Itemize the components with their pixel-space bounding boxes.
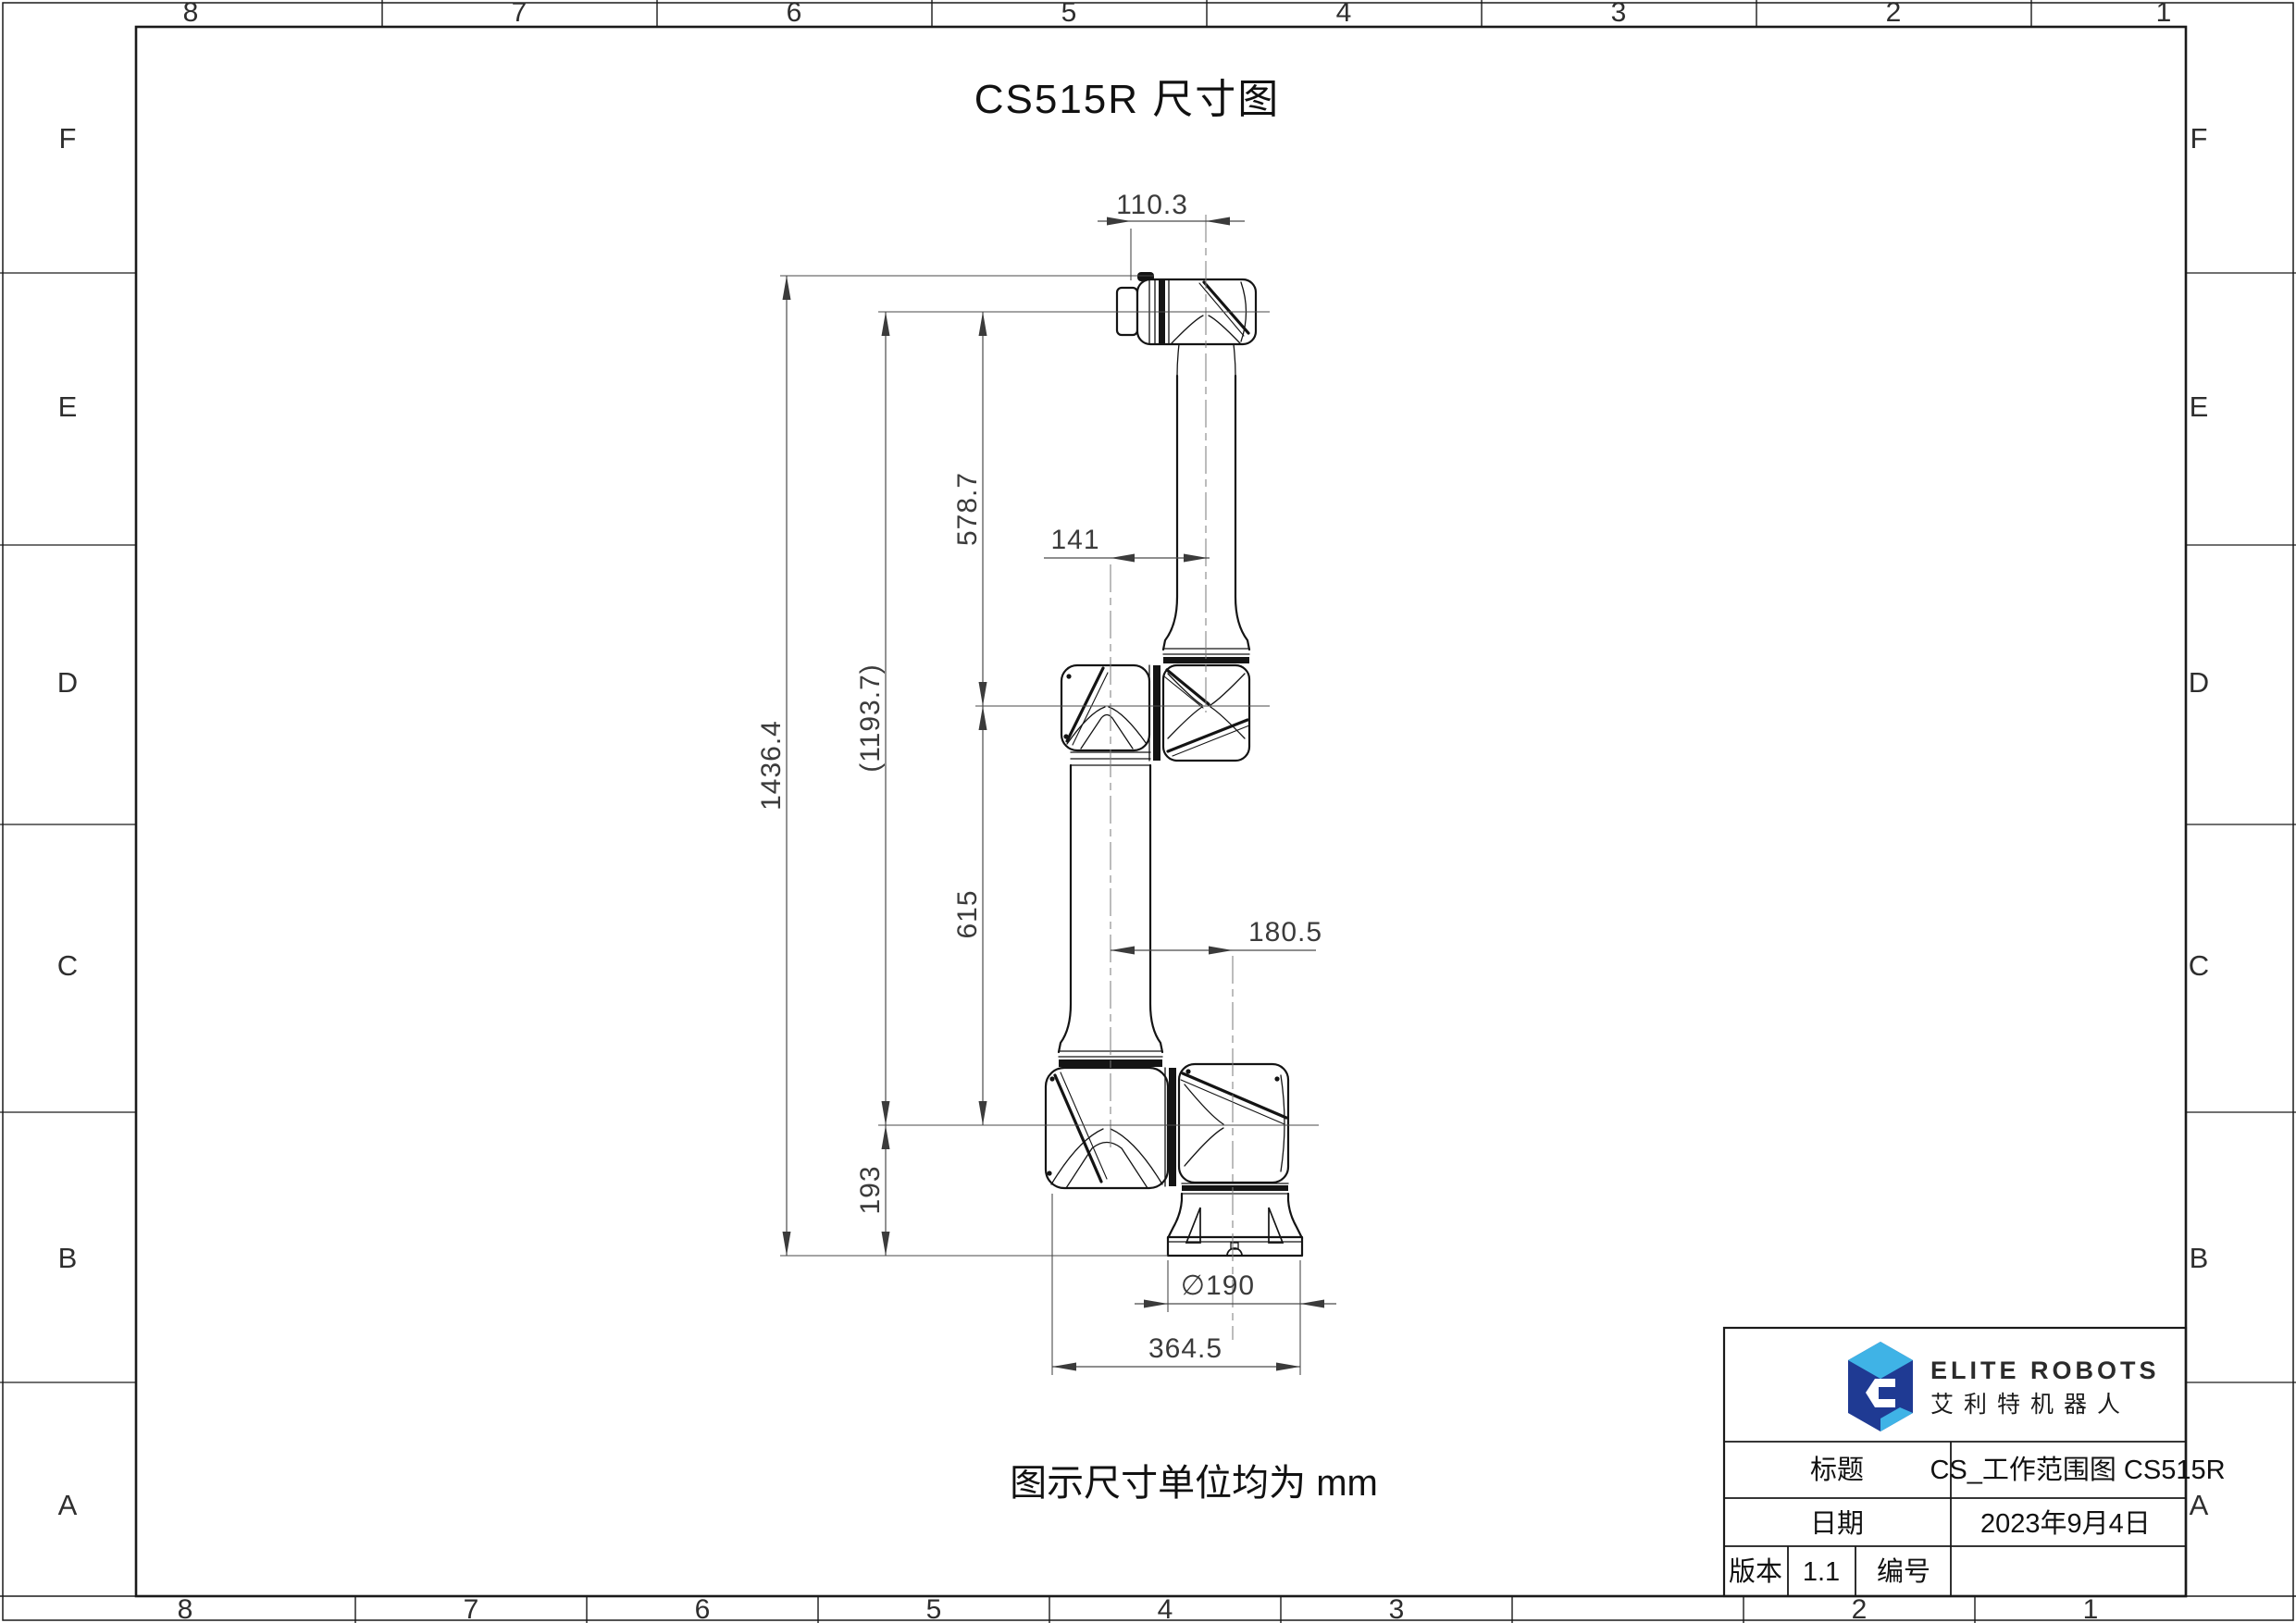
drawing-sheet: 8 7 6 5 4 3 2 1 8 7 6 5 4 3 2 1 F E D C … <box>0 0 2296 1623</box>
brand-name-en: ELITE ROBOTS <box>1930 1357 2160 1384</box>
zone-number: 3 <box>1389 1594 1405 1623</box>
zone-number: 6 <box>695 1594 711 1623</box>
page-title: CS515R 尺寸图 <box>974 77 1281 122</box>
zone-number: 6 <box>787 0 802 28</box>
dimension-shoulder-offset: 180.5 <box>1248 917 1322 948</box>
dimension-footprint-width: 364.5 <box>1148 1333 1222 1364</box>
zone-number: 5 <box>926 1594 942 1623</box>
version-value: 1.1 <box>1803 1557 1840 1587</box>
zone-letters-left: F E D C B A <box>57 122 78 1521</box>
zone-letter: C <box>57 949 78 982</box>
shoulder-joint <box>1046 1064 1288 1188</box>
zone-letter: D <box>2189 666 2209 699</box>
zone-ruler-top <box>382 0 2031 27</box>
zone-letter: A <box>58 1489 78 1521</box>
dimension-wrist-to-shoulder: (1193.7) <box>855 663 886 773</box>
zone-letter: F <box>59 122 77 155</box>
zone-letter: F <box>2191 122 2208 155</box>
zone-letter: D <box>57 666 78 699</box>
date-value: 2023年9月4日 <box>1980 1508 2151 1539</box>
zone-number: 7 <box>512 0 527 28</box>
dimension-wrist-offset: 110.3 <box>1116 190 1188 220</box>
zone-letter: A <box>2190 1489 2209 1521</box>
drawing-canvas: 8 7 6 5 4 3 2 1 8 7 6 5 4 3 2 1 F E D C … <box>0 0 2296 1623</box>
zone-letter: C <box>2189 949 2209 982</box>
zone-numbers-top: 8 7 6 5 4 3 2 1 <box>183 0 2172 28</box>
title-label: 标题 <box>1810 1455 1864 1485</box>
zone-number: 2 <box>1852 1594 1868 1623</box>
zone-row-dividers <box>0 273 2296 1382</box>
zone-number: 8 <box>178 1594 193 1623</box>
dimension-upper-arm: 578.7 <box>952 472 983 546</box>
shoulder-cap <box>1046 1068 1168 1188</box>
number-label: 编号 <box>1877 1556 1930 1587</box>
brand-name-cn: 艾利特机器人 <box>1930 1392 2130 1418</box>
dimension-elbow-offset: 141 <box>1050 525 1099 555</box>
title-block: ELITE ROBOTS 艾利特机器人 标题 CS_工作范围图 CS515R 日… <box>1724 1328 2226 1596</box>
zone-number: 4 <box>1336 0 1352 28</box>
zone-number: 5 <box>1061 0 1077 28</box>
date-label: 日期 <box>1810 1509 1864 1539</box>
wrist-assembly <box>1117 272 1256 376</box>
zone-number: 1 <box>2156 0 2172 28</box>
zone-number: 2 <box>1886 0 1902 28</box>
dimension-lower-arm: 615 <box>952 889 983 938</box>
zone-number: 1 <box>2083 1594 2099 1623</box>
zone-number: 4 <box>1158 1594 1173 1623</box>
zone-number: 3 <box>1611 0 1627 28</box>
zone-number: 7 <box>464 1594 479 1623</box>
dimension-annotations: 1436.4 (1193.7) 578.7 615 193 110.3 141 … <box>756 190 1336 1375</box>
dimension-base-height: 193 <box>855 1165 886 1214</box>
robot-arm-drawing <box>1046 272 1302 1256</box>
robot-base <box>1168 1183 1302 1256</box>
zone-letter: E <box>58 390 78 423</box>
zone-letters-right: F E D C B A <box>2189 122 2209 1521</box>
version-label: 版本 <box>1729 1556 1782 1587</box>
elbow-joint <box>1061 665 1249 765</box>
shoulder-housing <box>1179 1064 1288 1183</box>
title-value: CS_工作范围图 CS515R <box>1930 1455 2225 1485</box>
dimension-total-height: 1436.4 <box>756 720 787 811</box>
zone-numbers-bottom: 8 7 6 5 4 3 2 1 <box>178 1594 2099 1623</box>
zone-number: 8 <box>183 0 199 28</box>
zone-letter: E <box>2190 390 2209 423</box>
elite-robots-logo <box>1848 1342 1913 1431</box>
zone-letter: B <box>58 1242 78 1274</box>
zone-letter: B <box>2190 1242 2209 1274</box>
units-note: 图示尺寸单位均为 mm <box>1010 1463 1378 1504</box>
dimension-base-diameter: ∅190 <box>1181 1270 1255 1301</box>
